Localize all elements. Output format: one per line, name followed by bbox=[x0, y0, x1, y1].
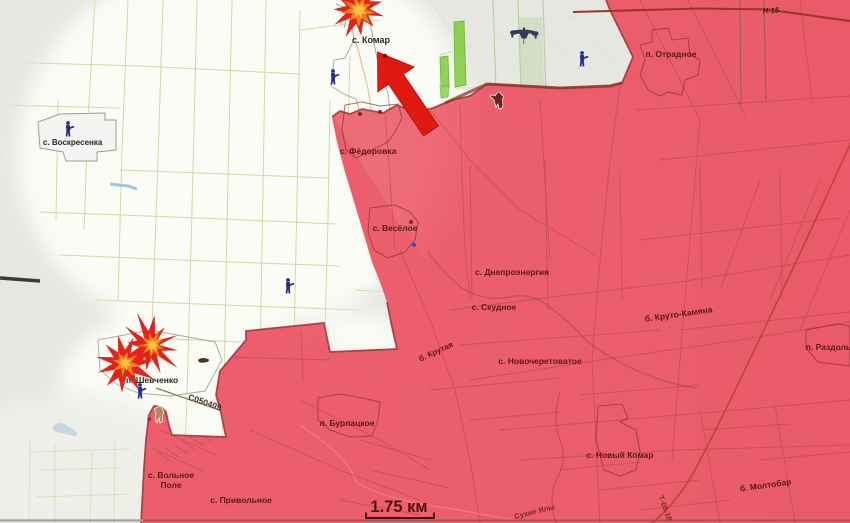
svg-text:с. Весёлое: с. Весёлое bbox=[373, 223, 418, 233]
svg-text:п. Бурлацкое: п. Бурлацкое bbox=[320, 418, 375, 428]
svg-text:с. Привольное: с. Привольное bbox=[210, 495, 272, 505]
svg-text:Н-15: Н-15 bbox=[763, 6, 781, 16]
svg-text:Поле: Поле bbox=[160, 480, 181, 490]
svg-text:п. Отрадное: п. Отрадное bbox=[646, 49, 697, 59]
svg-text:с. Скудное: с. Скудное bbox=[472, 302, 517, 312]
svg-text:с. Новочеретоватое: с. Новочеретоватое bbox=[498, 356, 582, 366]
svg-text:с. Воскресенка: с. Воскресенка bbox=[43, 138, 103, 147]
svg-text:с. Фёдоровка: с. Фёдоровка bbox=[340, 146, 397, 156]
svg-text:1.75 км: 1.75 км bbox=[370, 498, 427, 516]
svg-text:с. Комар: с. Комар bbox=[352, 35, 390, 45]
svg-text:п. Раздольное: п. Раздольное bbox=[806, 342, 850, 352]
svg-text:с. Новый Комар: с. Новый Комар bbox=[586, 450, 653, 460]
svg-text:м: м bbox=[147, 417, 152, 423]
svg-text:с. Днепроэнергия: с. Днепроэнергия bbox=[475, 267, 549, 277]
svg-text:с. Вольное: с. Вольное bbox=[148, 470, 195, 480]
